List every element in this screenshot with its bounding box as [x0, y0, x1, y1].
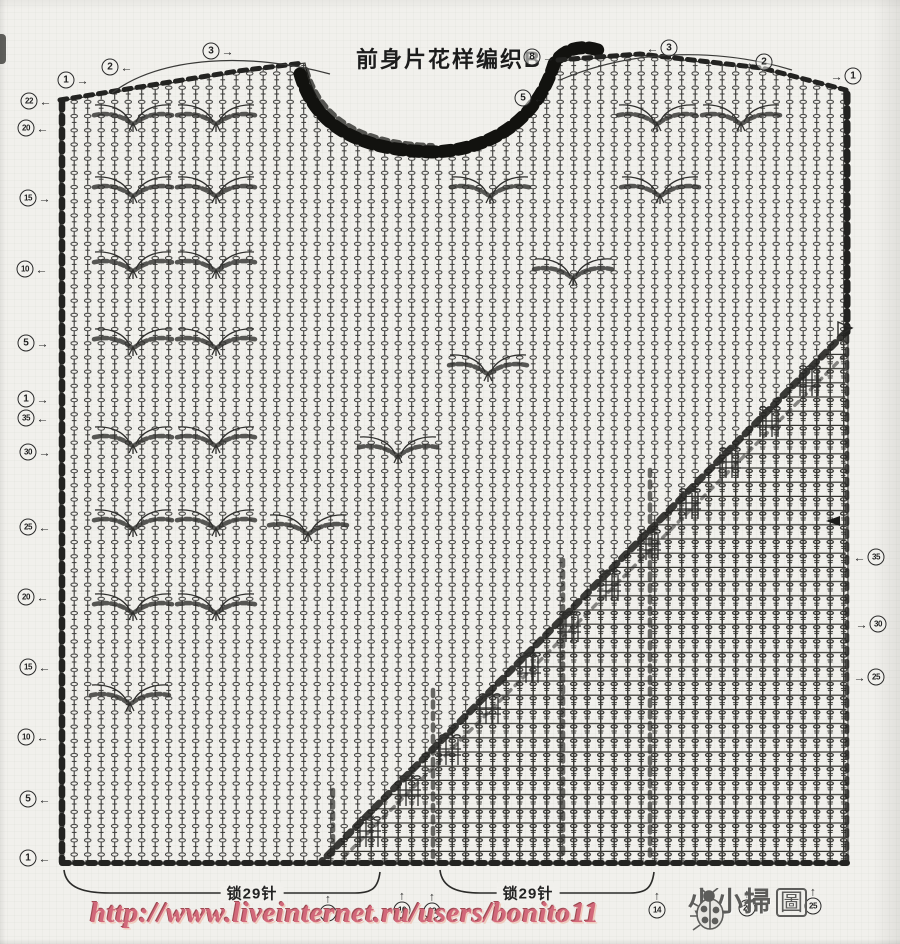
row-marker: ←3	[647, 40, 678, 57]
direction-arrow-icon: ←	[854, 551, 866, 563]
scan-stamp-seal: 圖	[776, 888, 807, 917]
row-marker: →30	[856, 616, 887, 633]
row-marker: 5←	[20, 791, 51, 808]
direction-arrow-icon: →	[39, 192, 51, 204]
row-marker: 15→	[20, 190, 51, 207]
row-marker: 5→	[18, 335, 49, 352]
crochet-chart-svg	[0, 0, 900, 944]
direction-arrow-icon: →	[39, 446, 51, 458]
direction-arrow-icon: ←	[36, 263, 48, 275]
page-title: 前身片花样编织B	[356, 42, 542, 74]
row-marker: 20←	[18, 589, 49, 606]
row-marker: 1→	[58, 72, 89, 89]
row-number-circle: 8	[524, 49, 541, 66]
row-number-circle: 5	[20, 791, 37, 808]
row-number-circle: 10	[18, 729, 35, 746]
row-marker: 25←	[20, 519, 51, 536]
row-number-circle: 1	[58, 72, 75, 89]
direction-arrow-icon: ↑	[810, 886, 816, 898]
direction-arrow-icon: ←	[37, 412, 49, 424]
row-number-circle: 30	[870, 616, 887, 633]
row-number-circle: 30	[20, 444, 37, 461]
row-number-circle: 5	[18, 335, 35, 352]
row-number-circle: 3	[661, 40, 678, 57]
row-number-circle: 25	[868, 669, 885, 686]
row-marker: ←35	[854, 549, 885, 566]
direction-arrow-icon: →	[742, 56, 754, 68]
row-number-circle: 2	[756, 54, 773, 71]
row-number-circle: 10	[17, 261, 34, 278]
row-number-circle: 5	[515, 90, 532, 107]
scanned-crochet-chart-page: 前身片花样编织B 锁29针 锁29针 http://www.liveintern…	[0, 0, 900, 944]
direction-arrow-icon: →	[831, 70, 843, 82]
row-number-circle: 35	[18, 410, 35, 427]
row-number-circle: 35	[868, 549, 885, 566]
direction-arrow-icon: →	[37, 393, 49, 405]
row-number-circle: 1	[845, 68, 862, 85]
direction-arrow-icon: ←	[39, 793, 51, 805]
row-number-circle: 2	[102, 59, 119, 76]
direction-arrow-icon: ←	[39, 521, 51, 533]
row-number-circle: 3	[203, 43, 220, 60]
row-marker: 1→	[18, 391, 49, 408]
row-marker: →2	[742, 54, 773, 71]
row-marker: 30→	[20, 444, 51, 461]
direction-arrow-icon: ←	[647, 42, 659, 54]
row-marker: 2←	[102, 59, 133, 76]
row-number-circle: 1	[20, 850, 37, 867]
scan-stamp: 小小掃 圖	[688, 888, 807, 917]
row-marker: 10←	[17, 261, 48, 278]
direction-arrow-icon: ←	[39, 661, 51, 673]
row-marker: →1	[831, 68, 862, 85]
ladybug-icon	[688, 888, 728, 934]
row-marker: 3→	[203, 43, 234, 60]
direction-arrow-icon: →	[854, 671, 866, 683]
row-number-circle: 25	[20, 519, 37, 536]
row-marker: 8→	[524, 49, 555, 66]
row-number-circle: 15	[20, 190, 37, 207]
row-marker: →25	[854, 669, 885, 686]
direction-arrow-icon: →	[37, 337, 49, 349]
direction-arrow-icon: →	[222, 45, 234, 57]
scan-smudge	[0, 34, 6, 64]
row-number-circle: 15	[20, 659, 37, 676]
direction-arrow-icon: ←	[121, 61, 133, 73]
row-marker: 22←	[21, 93, 52, 110]
row-number-circle: 22	[21, 93, 38, 110]
row-number-circle: 20	[18, 120, 35, 137]
direction-arrow-icon: →	[856, 618, 868, 630]
direction-arrow-icon: ←	[37, 731, 49, 743]
direction-arrow-icon: ←	[37, 591, 49, 603]
row-number-circle: 1	[18, 391, 35, 408]
row-marker: 20←	[18, 120, 49, 137]
row-marker: 5←	[515, 90, 546, 107]
row-marker: 15←	[20, 659, 51, 676]
direction-arrow-icon: ←	[534, 92, 546, 104]
row-marker: 10←	[18, 729, 49, 746]
direction-arrow-icon: ←	[40, 95, 52, 107]
direction-arrow-icon: →	[543, 51, 555, 63]
row-number-circle: 20	[18, 589, 35, 606]
direction-arrow-icon: →	[77, 74, 89, 86]
direction-arrow-icon: ←	[39, 852, 51, 864]
row-marker: 35←	[18, 410, 49, 427]
row-marker: 1←	[20, 850, 51, 867]
direction-arrow-icon: ←	[37, 122, 49, 134]
